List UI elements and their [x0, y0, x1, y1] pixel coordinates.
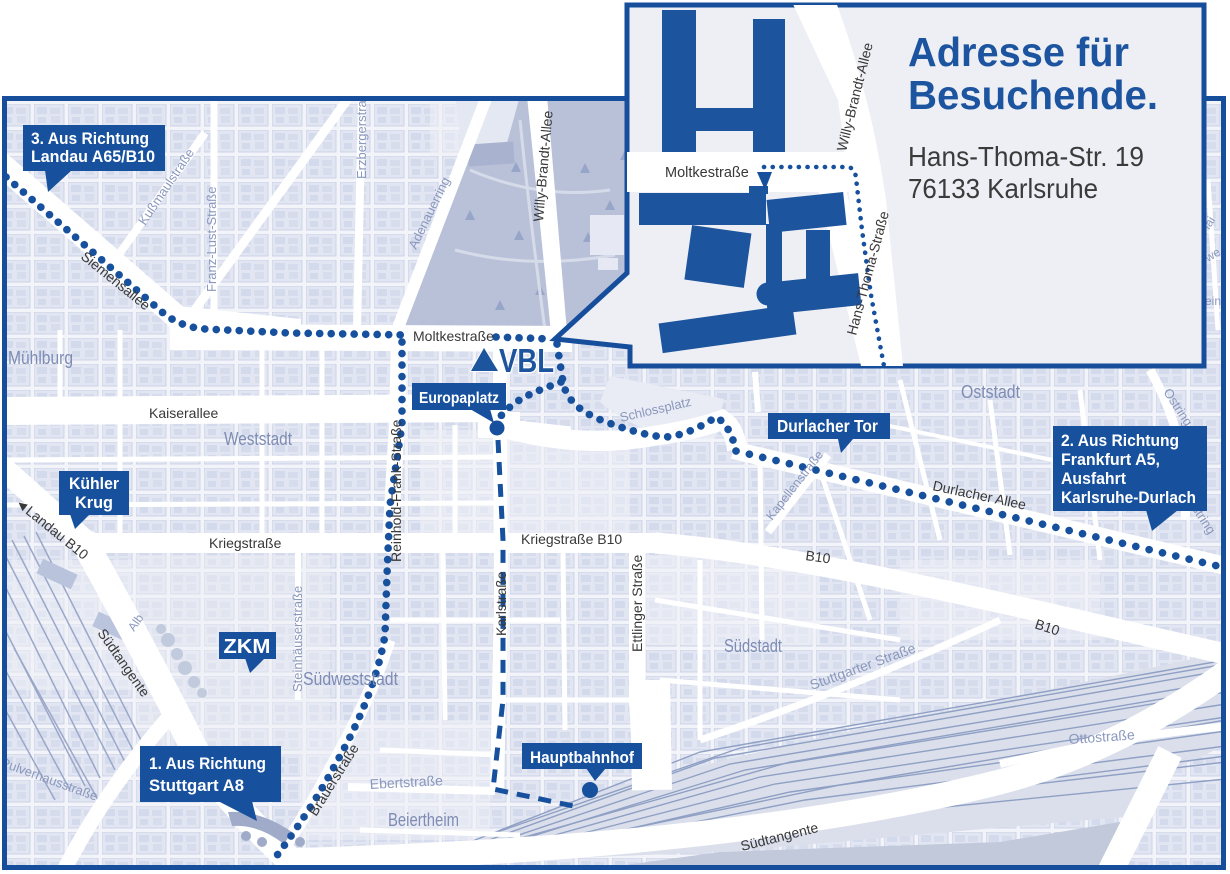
svg-text:Reinhold-Frank-Straße: Reinhold-Frank-Straße	[388, 419, 404, 562]
svg-text:Landau A65/B10: Landau A65/B10	[31, 147, 155, 166]
svg-text:76133 Karlsruhe: 76133 Karlsruhe	[908, 173, 1098, 204]
svg-text:Krug: Krug	[75, 493, 113, 512]
svg-text:Adresse für: Adresse für	[908, 29, 1129, 75]
svg-text:Ettlinger Straße: Ettlinger Straße	[629, 555, 645, 652]
svg-text:Beiertheim: Beiertheim	[388, 809, 459, 830]
svg-text:Mühlburg: Mühlburg	[8, 347, 73, 368]
svg-text:Oststadt: Oststadt	[961, 381, 1020, 402]
svg-text:ein: ein	[1205, 294, 1221, 308]
svg-text:Europaplatz: Europaplatz	[419, 390, 499, 407]
svg-text:2. Aus Richtung: 2. Aus Richtung	[1061, 431, 1179, 450]
svg-text:Kriegstraße: Kriegstraße	[209, 535, 282, 551]
svg-text:Hans-Thoma-Str. 19: Hans-Thoma-Str. 19	[908, 141, 1144, 172]
svg-text:3. Aus Richtung: 3. Aus Richtung	[31, 129, 149, 148]
svg-text:Kühler: Kühler	[69, 474, 119, 493]
svg-text:Durlacher Tor: Durlacher Tor	[777, 416, 878, 436]
svg-text:Moltkestraße: Moltkestraße	[665, 165, 749, 181]
svg-text:Karlstraße: Karlstraße	[493, 571, 509, 636]
svg-text:Franz-Lust-Straße: Franz-Lust-Straße	[204, 187, 219, 292]
svg-text:Steinhäuserstraße: Steinhäuserstraße	[290, 586, 305, 692]
svg-text:Ausfahrt: Ausfahrt	[1061, 469, 1126, 488]
svg-text:Moltkestraße: Moltkestraße	[413, 328, 494, 344]
svg-text:Karlsruhe-Durlach: Karlsruhe-Durlach	[1061, 488, 1196, 507]
svg-text:VBL: VBL	[499, 342, 554, 379]
svg-text:ZKM: ZKM	[224, 636, 271, 658]
svg-text:Frankfurt A5,: Frankfurt A5,	[1061, 450, 1160, 469]
svg-text:Südweststadt: Südweststadt	[303, 668, 398, 689]
svg-text:Kaiserallee: Kaiserallee	[149, 405, 218, 421]
svg-text:Besuchende.: Besuchende.	[908, 72, 1158, 118]
svg-text:Stuttgart A8: Stuttgart A8	[149, 776, 244, 795]
svg-text:Kriegstraße B10: Kriegstraße B10	[521, 531, 622, 547]
svg-text:Weststadt: Weststadt	[224, 428, 292, 449]
svg-text:1. Aus Richtung: 1. Aus Richtung	[149, 754, 266, 773]
svg-text:Südstadt: Südstadt	[724, 635, 782, 656]
svg-text:Hauptbahnhof: Hauptbahnhof	[530, 749, 634, 767]
